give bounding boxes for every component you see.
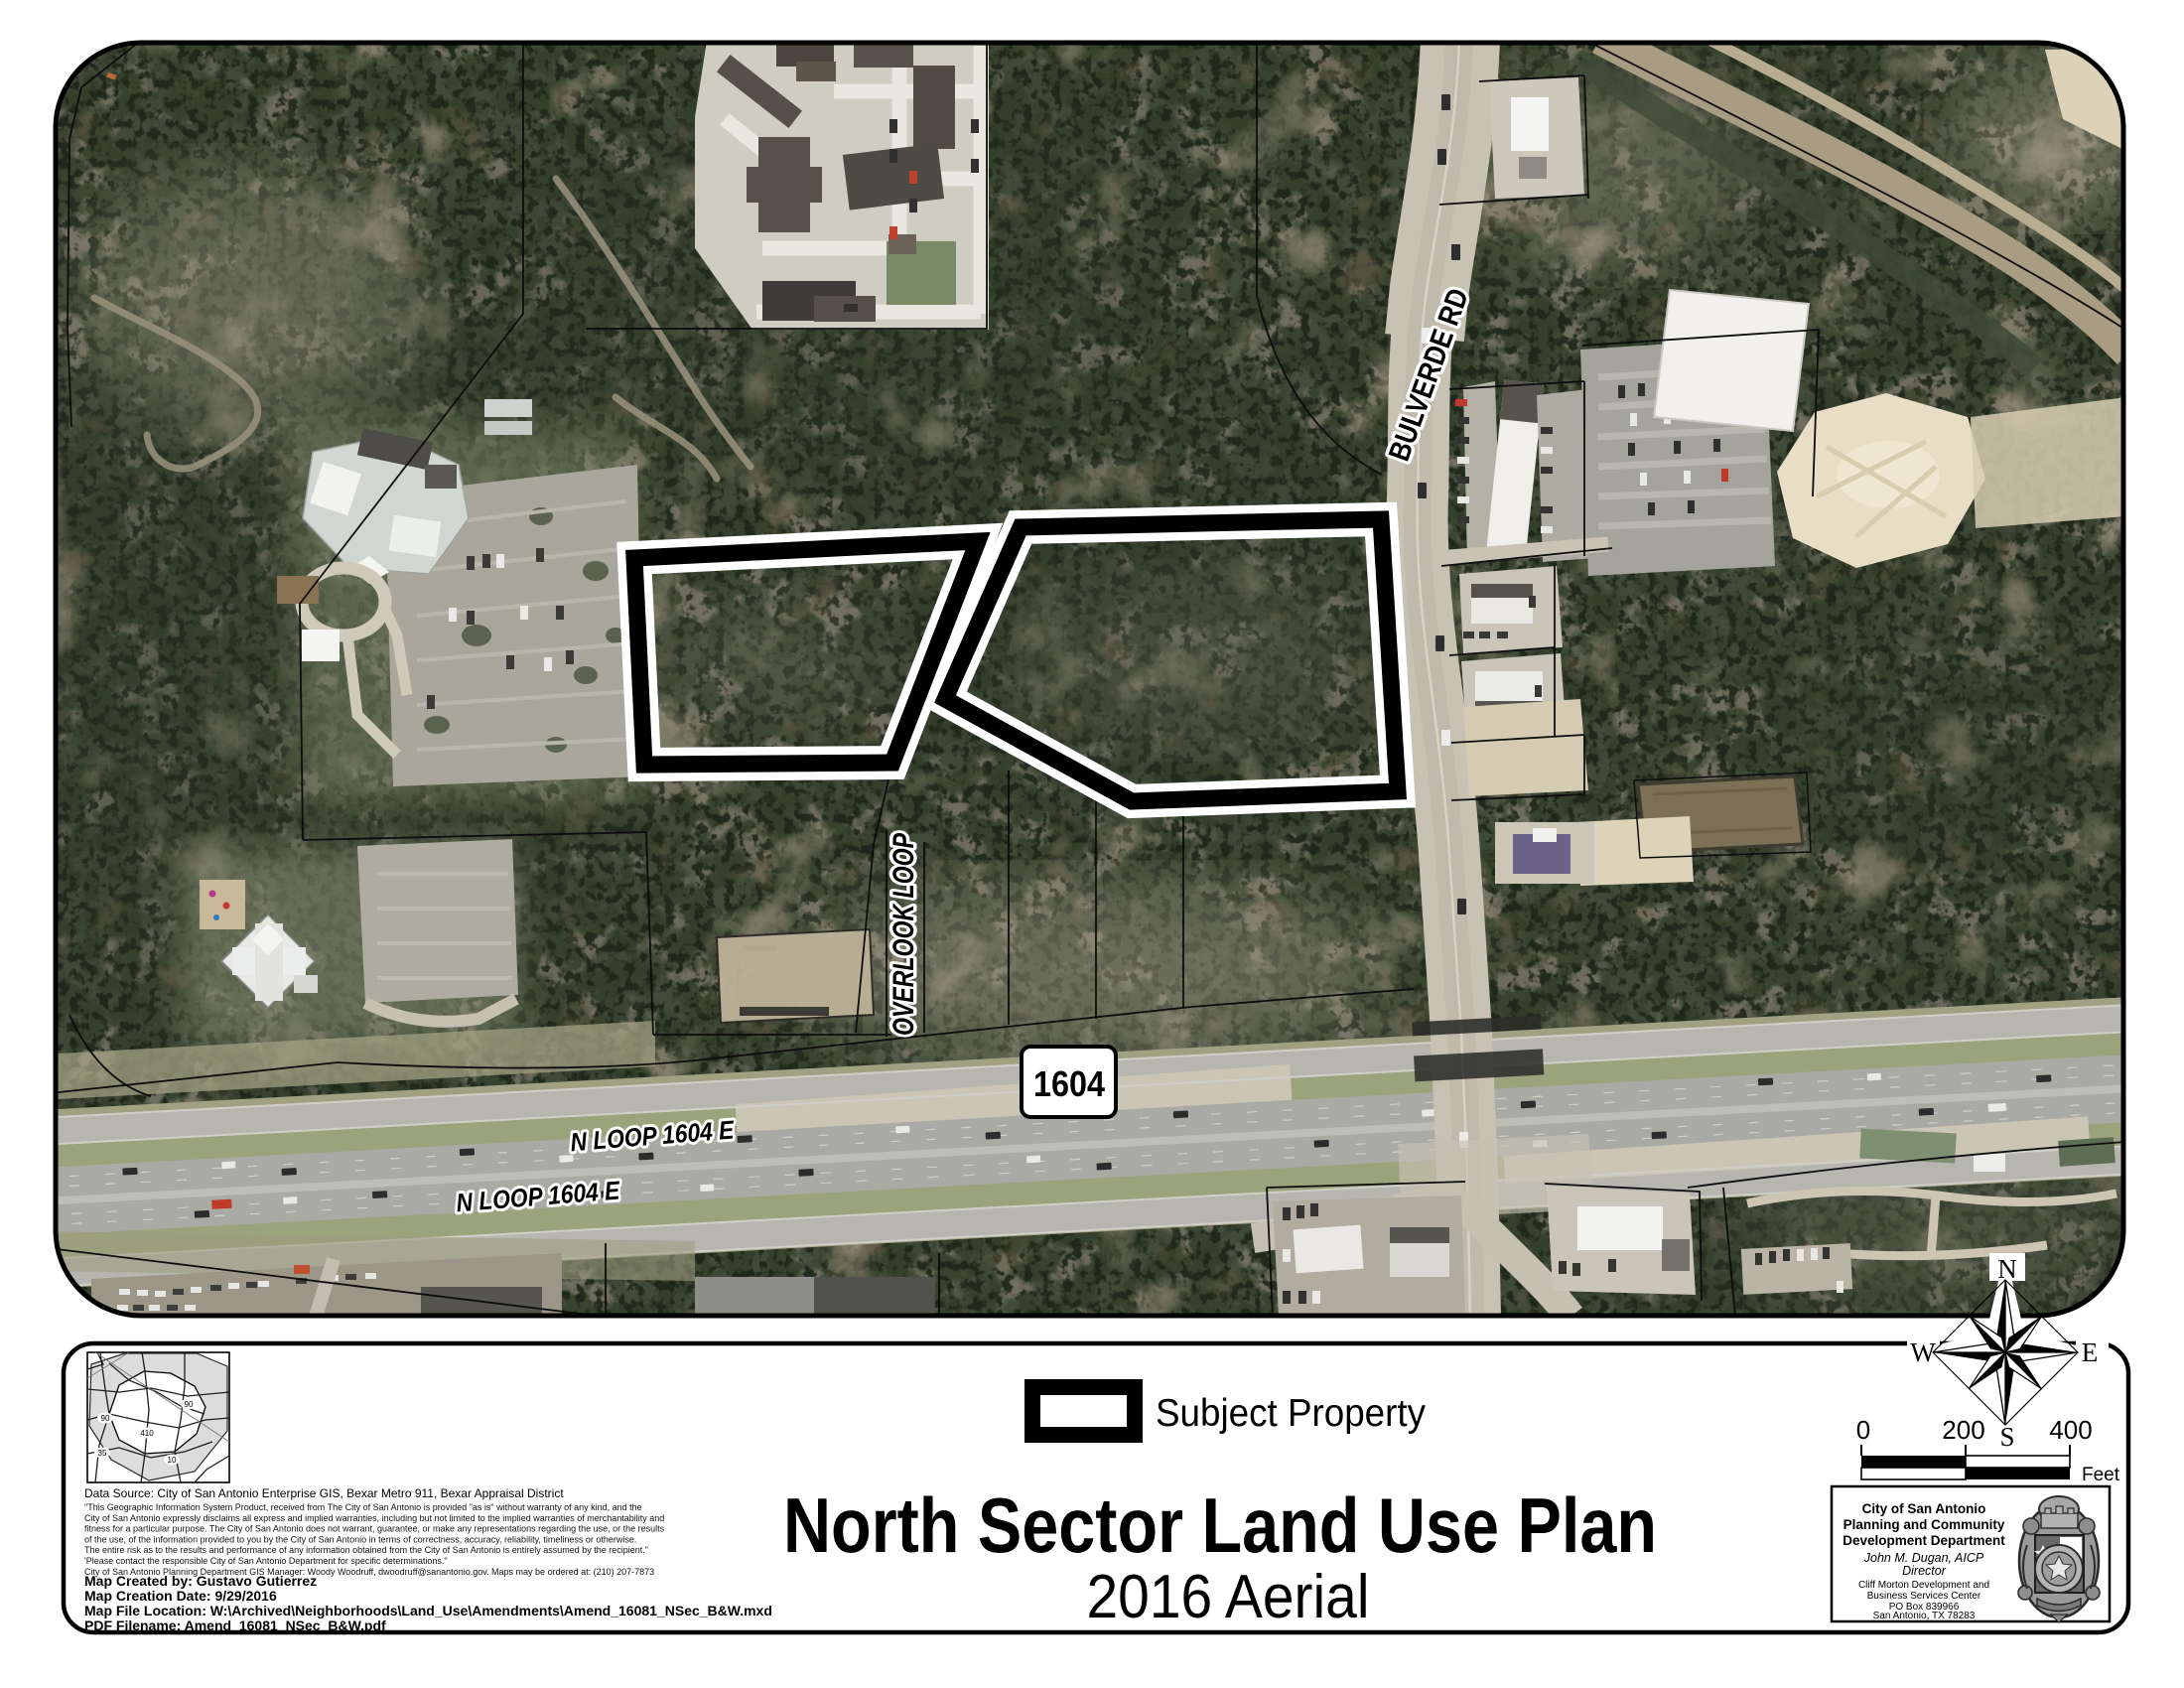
svg-text:Map Creation Date: 9/29/2016: Map Creation Date: 9/29/2016 <box>84 1588 277 1604</box>
svg-text:John M. Dugan, AICP: John M. Dugan, AICP <box>1863 1551 1984 1565</box>
svg-text:Development Department: Development Department <box>1843 1533 2005 1548</box>
svg-text:OVERLOOK LOOP: OVERLOOK LOOP <box>887 832 920 1036</box>
svg-text:Planning and Community: Planning and Community <box>1843 1517 2005 1532</box>
svg-text:of the use, of the information: of the use, of the information provided … <box>84 1534 636 1544</box>
svg-text:2016 Aerial: 2016 Aerial <box>1087 1563 1370 1631</box>
svg-text:410: 410 <box>140 1429 154 1438</box>
svg-text:90: 90 <box>185 1400 194 1409</box>
svg-text:E: E <box>2082 1337 2099 1367</box>
svg-text:Map File Location: W:\Archived: Map File Location: W:\Archived\Neighborh… <box>84 1603 772 1618</box>
svg-text:San Antonio, TX 78283: San Antonio, TX 78283 <box>1873 1611 1976 1621</box>
svg-text:0: 0 <box>1856 1415 1870 1445</box>
svg-text:City of San Antonio expressly: City of San Antonio expressly disclaims … <box>84 1513 664 1523</box>
svg-text:'Please contact the responsibl: 'Please contact the responsible City of … <box>84 1556 448 1566</box>
svg-text:Subject Property: Subject Property <box>1156 1392 1426 1435</box>
svg-text:City of San Antonio: City of San Antonio <box>1862 1501 1986 1516</box>
svg-text:S: S <box>1999 1422 2014 1452</box>
svg-text:Feet: Feet <box>2082 1465 2120 1485</box>
svg-text:Map Created by: Gustavo Gutier: Map Created by: Gustavo Gutierrez <box>84 1573 317 1589</box>
svg-text:W: W <box>1910 1337 1936 1367</box>
svg-text:PDF Filename: Amend_16081_NSec: PDF Filename: Amend_16081_NSec_B&W.pdf <box>84 1618 386 1633</box>
svg-text:35: 35 <box>98 1449 107 1458</box>
svg-text:400: 400 <box>2049 1415 2092 1445</box>
svg-text:North Sector Land Use Plan: North Sector Land Use Plan <box>783 1481 1657 1569</box>
svg-text:Business Services Center: Business Services Center <box>1867 1591 1981 1602</box>
svg-text:Data Source: City of San Anton: Data Source: City of San Antonio Enterpr… <box>84 1486 564 1500</box>
svg-text:200: 200 <box>1942 1415 1984 1445</box>
svg-text:Director: Director <box>1902 1564 1947 1578</box>
svg-text:90: 90 <box>101 1414 110 1423</box>
svg-text:1604: 1604 <box>1033 1063 1105 1104</box>
svg-text:fitness for a particular purpo: fitness for a particular purpose. The Ci… <box>84 1524 665 1534</box>
svg-text:10: 10 <box>168 1456 177 1465</box>
svg-text:"This Geographic Information S: "This Geographic Information System Prod… <box>84 1502 642 1512</box>
svg-text:The entire risk as to the resu: The entire risk as to the results and pe… <box>84 1545 648 1555</box>
svg-text:N: N <box>1997 1254 2017 1284</box>
svg-text:Cliff Morton Development and: Cliff Morton Development and <box>1858 1580 1989 1591</box>
